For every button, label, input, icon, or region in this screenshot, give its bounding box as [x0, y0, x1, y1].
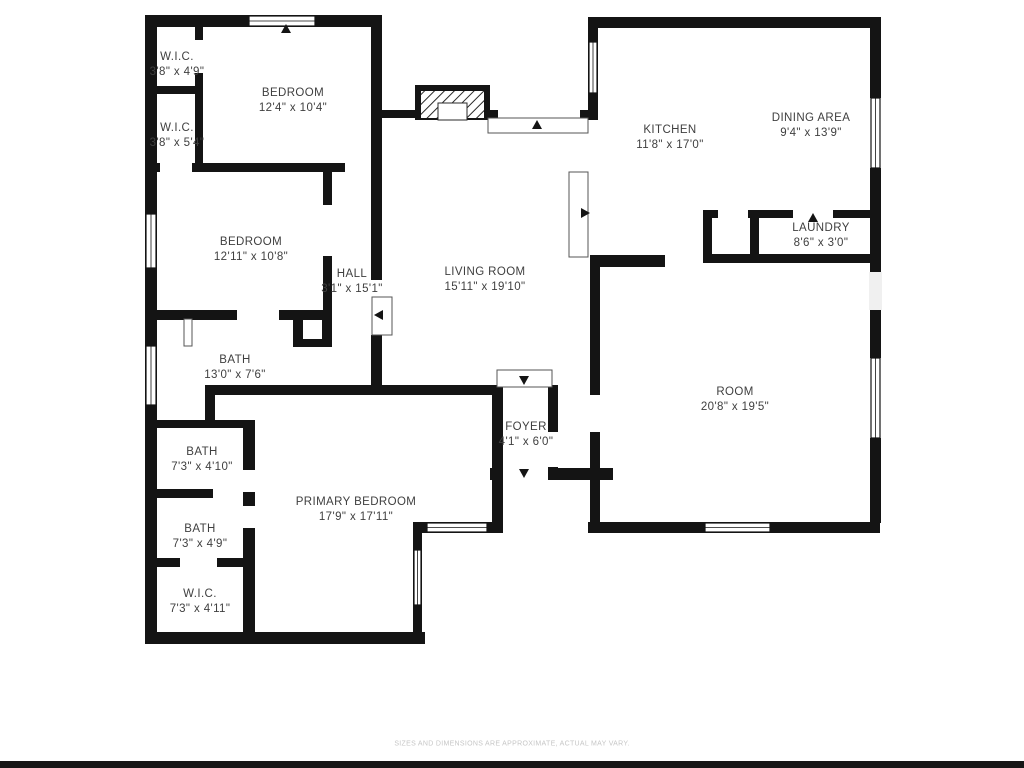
window [871, 98, 880, 168]
room-name: BATH [219, 354, 250, 366]
room-label-bedroom-1: BEDROOM 12'4" x 10'4" [259, 86, 327, 116]
floorplan-drawing [0, 0, 1024, 768]
room-label-wic-1: W.I.C. 3'8" x 4'9" [150, 50, 205, 80]
window [146, 346, 156, 405]
room-label-bath-3: BATH 7'3" x 4'9" [173, 522, 228, 552]
room-label-wic-3: W.I.C. 7'3" x 4'11" [170, 587, 231, 617]
room-label-foyer: FOYER 4'1" x 6'0" [499, 420, 554, 450]
room-dims: 12'11" x 10'8" [214, 250, 288, 265]
window [589, 42, 597, 93]
room-name: LAUNDRY [792, 222, 850, 234]
room-name: DINING AREA [772, 112, 851, 124]
disclaimer-text: SIZES AND DIMENSIONS ARE APPROXIMATE, AC… [394, 741, 629, 748]
room-dims: 3'8" x 5'4" [150, 136, 205, 151]
room-dims: 11'8" x 17'0" [636, 138, 703, 153]
room-label-bedroom-2: BEDROOM 12'11" x 10'8" [214, 235, 288, 265]
room-dims: 7'3" x 4'9" [173, 537, 228, 552]
room-label-dining-area: DINING AREA 9'4" x 13'9" [772, 111, 851, 141]
room-name: W.I.C. [160, 122, 194, 134]
windows-layer [146, 16, 880, 605]
room-name: KITCHEN [643, 124, 696, 136]
arrow-down [519, 469, 529, 478]
room-dims: 17'9" x 17'11" [296, 510, 417, 525]
window [705, 523, 770, 532]
window [249, 16, 315, 26]
bath-fixture [184, 319, 192, 346]
bottom-bar [0, 761, 1024, 768]
room-name: ROOM [716, 386, 753, 398]
room-label-hall: HALL 3'1" x 15'1" [321, 267, 382, 297]
room-name: BATH [184, 523, 215, 535]
room-name: W.I.C. [183, 588, 217, 600]
window [414, 550, 421, 605]
floor-plan: W.I.C. 3'8" x 4'9" W.I.C. 3'8" x 5'4" BE… [0, 0, 1024, 768]
window [871, 358, 880, 438]
room-label-kitchen: KITCHEN 11'8" x 17'0" [636, 123, 703, 153]
room-name: PRIMARY BEDROOM [296, 496, 417, 508]
room-name: FOYER [505, 421, 547, 433]
room-dims: 20'8" x 19'5" [701, 400, 769, 415]
room-label-living-room: LIVING ROOM 15'11" x 19'10" [444, 265, 525, 295]
room-dims: 8'6" x 3'0" [792, 236, 850, 251]
window [146, 214, 156, 268]
patio-opening [869, 272, 882, 310]
room-label-laundry: LAUNDRY 8'6" x 3'0" [792, 221, 850, 251]
room-name: BATH [186, 446, 217, 458]
room-label-bath-1: BATH 13'0" x 7'6" [204, 353, 265, 383]
room-dims: 9'4" x 13'9" [772, 126, 851, 141]
room-name: W.I.C. [160, 51, 194, 63]
room-dims: 15'11" x 19'10" [444, 280, 525, 295]
room-name: LIVING ROOM [444, 266, 525, 278]
walls-layer [145, 15, 881, 644]
room-dims: 12'4" x 10'4" [259, 101, 327, 116]
room-dims: 4'1" x 6'0" [499, 435, 554, 450]
room-label-wic-2: W.I.C. 3'8" x 5'4" [150, 121, 205, 151]
room-label-room: ROOM 20'8" x 19'5" [701, 385, 769, 415]
room-name: BEDROOM [262, 87, 324, 99]
room-label-primary-bedroom: PRIMARY BEDROOM 17'9" x 17'11" [296, 495, 417, 525]
room-dims: 7'3" x 4'10" [171, 460, 232, 475]
room-dims: 7'3" x 4'11" [170, 602, 231, 617]
room-label-bath-2: BATH 7'3" x 4'10" [171, 445, 232, 475]
room-dims: 3'8" x 4'9" [150, 65, 205, 80]
room-dims: 13'0" x 7'6" [204, 368, 265, 383]
room-name: HALL [337, 268, 367, 280]
room-dims: 3'1" x 15'1" [321, 282, 382, 297]
room-name: BEDROOM [220, 236, 282, 248]
fireplace [421, 91, 484, 120]
window [427, 523, 487, 532]
